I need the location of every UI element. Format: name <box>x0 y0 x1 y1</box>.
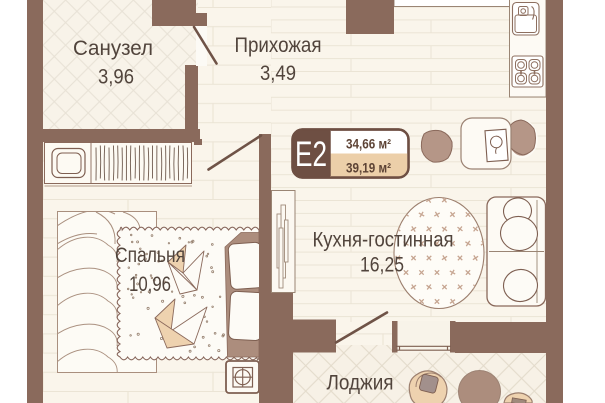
svg-text:Кухня-гостинная: Кухня-гостинная <box>313 228 454 252</box>
svg-text:Лоджия: Лоджия <box>327 371 394 395</box>
svg-text:Санузел: Санузел <box>73 36 153 60</box>
svg-text:Прихожая: Прихожая <box>235 33 322 57</box>
svg-text:39,19 м²: 39,19 м² <box>346 160 391 176</box>
svg-text:3,49: 3,49 <box>260 61 296 85</box>
svg-text:10,96: 10,96 <box>129 272 171 296</box>
svg-text:3,96: 3,96 <box>98 65 134 89</box>
svg-text:Спальня: Спальня <box>115 243 185 267</box>
svg-text:34,66 м²: 34,66 м² <box>346 136 391 152</box>
svg-text:Е2: Е2 <box>295 135 327 174</box>
svg-text:16,25: 16,25 <box>360 253 404 277</box>
